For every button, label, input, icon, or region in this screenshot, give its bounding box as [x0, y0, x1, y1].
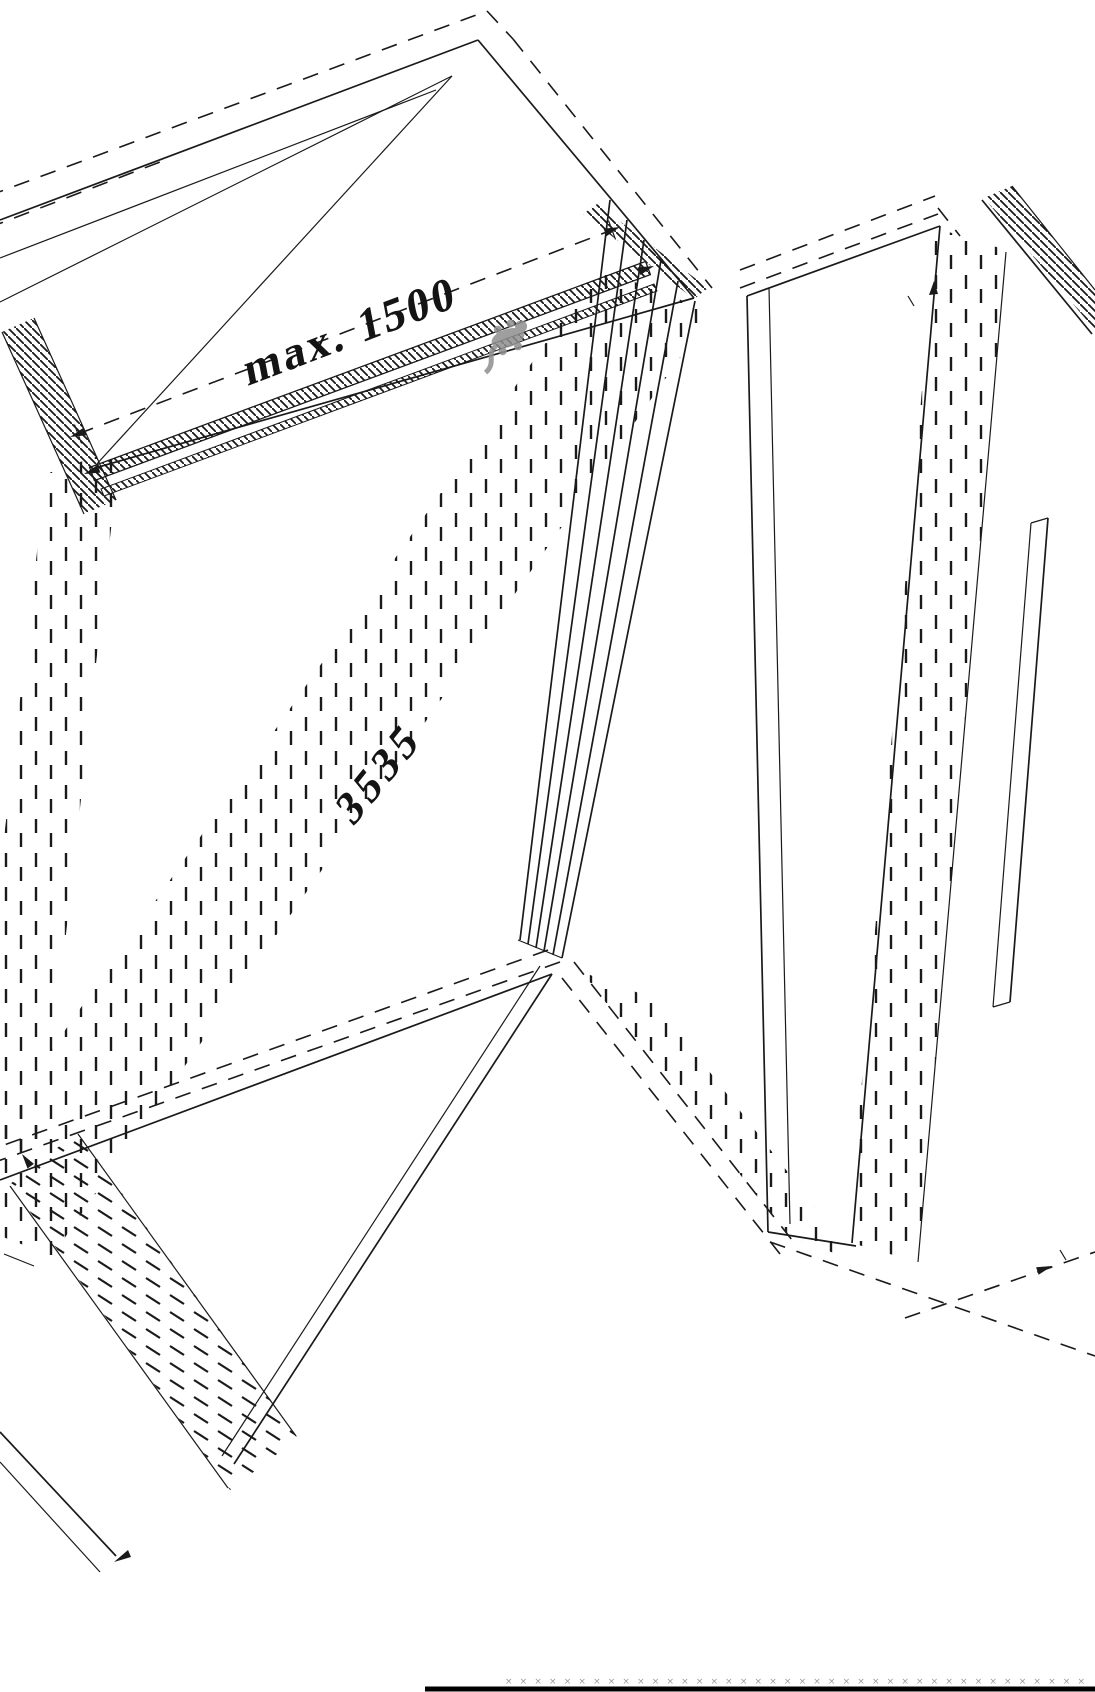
ground-line: × × × × × × × × × × × × × × × × × × × × … — [425, 1677, 1095, 1689]
technical-drawing: max. 1500 3535 — [0, 0, 1095, 1692]
